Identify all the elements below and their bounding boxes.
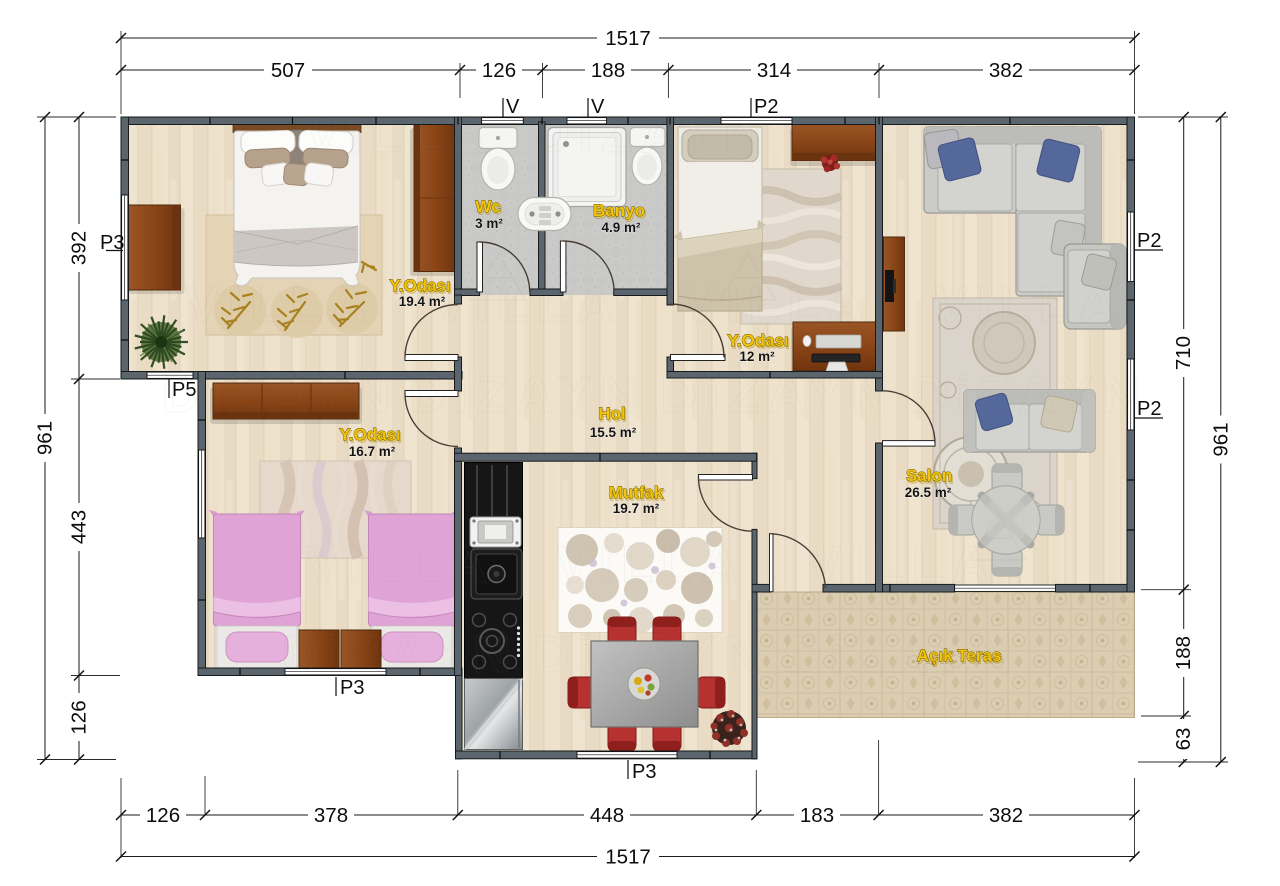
svg-text:382: 382 (989, 804, 1023, 827)
svg-text:1517: 1517 (605, 27, 651, 50)
svg-text:507: 507 (271, 59, 305, 82)
svg-text:DiZAYN: DiZAYN (660, 366, 897, 424)
svg-text:378: 378 (314, 804, 348, 827)
svg-text:443: 443 (68, 510, 91, 544)
svg-text:19.7 m²: 19.7 m² (613, 501, 660, 516)
svg-text:V: V (506, 96, 520, 118)
svg-text:VILLA: VILLA (934, 276, 1124, 334)
svg-text:V: V (591, 96, 605, 118)
svg-text:Wc: Wc (475, 197, 501, 216)
svg-text:VILLA: VILLA (305, 536, 495, 594)
svg-text:VILLA: VILLA (556, 536, 746, 594)
svg-text:26.5 m²: 26.5 m² (905, 485, 952, 500)
svg-text:VILLA: VILLA (305, 106, 495, 164)
svg-text:188: 188 (1172, 636, 1195, 670)
svg-text:314: 314 (757, 59, 791, 82)
svg-text:16.7 m²: 16.7 m² (349, 444, 396, 459)
svg-text:710: 710 (1172, 336, 1195, 370)
svg-text:Y.Odası: Y.Odası (389, 276, 450, 295)
svg-text:Y.Odası: Y.Odası (339, 425, 400, 444)
svg-text:VILLA: VILLA (432, 276, 622, 334)
svg-text:183: 183 (800, 804, 834, 827)
svg-text:Y.Odası: Y.Odası (727, 331, 788, 350)
svg-text:961: 961 (34, 421, 57, 455)
svg-text:VILLA: VILLA (683, 276, 873, 334)
svg-text:961: 961 (1209, 422, 1232, 456)
svg-text:188: 188 (591, 59, 625, 82)
svg-text:P2: P2 (754, 96, 778, 118)
svg-text:DiZAYN: DiZAYN (533, 626, 770, 684)
svg-text:126: 126 (482, 59, 516, 82)
svg-text:12 m²: 12 m² (739, 349, 775, 364)
svg-text:P2: P2 (1137, 230, 1161, 252)
svg-text:VILLA: VILLA (185, 276, 375, 334)
svg-text:Açık Teras: Açık Teras (917, 646, 1002, 665)
svg-text:P5: P5 (172, 379, 196, 401)
svg-text:P2: P2 (1137, 398, 1161, 420)
svg-text:P3: P3 (632, 761, 656, 783)
svg-text:448: 448 (590, 804, 624, 827)
svg-text:63: 63 (1172, 728, 1195, 751)
svg-text:382: 382 (989, 59, 1023, 82)
svg-text:1517: 1517 (605, 846, 651, 869)
svg-text:Salon: Salon (906, 466, 952, 485)
svg-text:19.4 m²: 19.4 m² (399, 294, 446, 309)
svg-text:15.5 m²: 15.5 m² (590, 425, 637, 440)
svg-text:DiZAYN: DiZAYN (911, 366, 1148, 424)
svg-text:Mutfak: Mutfak (609, 483, 664, 502)
svg-text:DiZAYN: DiZAYN (282, 626, 519, 684)
svg-text:126: 126 (146, 804, 180, 827)
svg-text:P3: P3 (100, 232, 124, 254)
svg-text:DiZAYN: DiZAYN (162, 366, 399, 424)
svg-text:Banyo: Banyo (593, 201, 645, 220)
svg-text:VILLA: VILLA (807, 536, 997, 594)
svg-text:Hol: Hol (598, 404, 625, 423)
svg-text:126: 126 (68, 700, 91, 734)
svg-text:P3: P3 (340, 677, 364, 699)
svg-text:4.9 m²: 4.9 m² (601, 220, 641, 235)
svg-text:DiZAYN: DiZAYN (533, 106, 770, 164)
svg-text:3 m²: 3 m² (475, 216, 503, 231)
svg-text:392: 392 (68, 231, 91, 265)
